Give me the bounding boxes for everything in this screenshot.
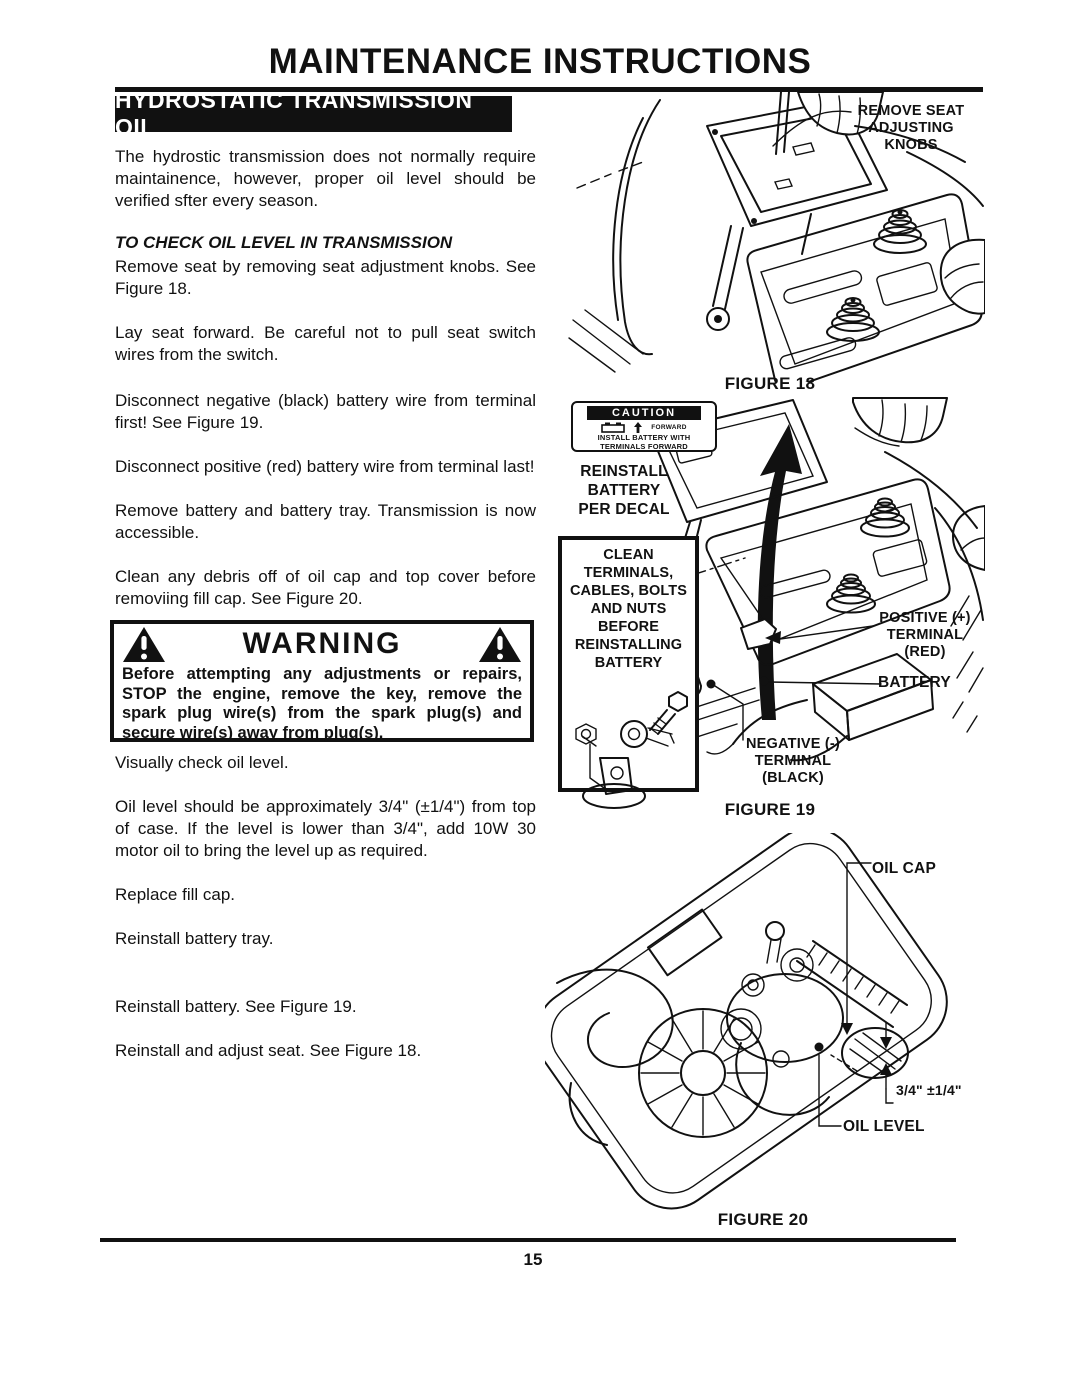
warning-triangle-icon	[122, 626, 166, 664]
reinstall-battery-note: REINSTALL BATTERY PER DECAL	[558, 462, 690, 519]
caution-decal-title: CAUTION	[587, 406, 701, 420]
fig19-caption: FIGURE 19	[690, 800, 850, 820]
oil-level-label: OIL LEVEL	[843, 1118, 935, 1135]
intro-paragraph: The hydrostic transmission does not norm…	[115, 146, 536, 212]
instruction-paragraph: Reinstall battery tray.	[115, 928, 536, 950]
warning-box: WARNING Before attempting any adjustment…	[110, 620, 534, 742]
battery-icon	[601, 422, 625, 433]
forward-arrow-icon	[633, 422, 643, 434]
negative-terminal-label: NEGATIVE (-) TERMINAL (BLACK)	[735, 736, 851, 787]
instruction-paragraph: Remove battery and battery tray. Transmi…	[115, 500, 536, 544]
fig20-caption: FIGURE 20	[683, 1210, 843, 1230]
figure-20-illustration	[545, 833, 980, 1238]
oil-cap-label: OIL CAP	[872, 860, 954, 877]
fig18-remove-seat-callout: REMOVE SEAT ADJUSTING KNOBS	[845, 103, 977, 154]
instruction-paragraph: Reinstall and adjust seat. See Figure 18…	[115, 1040, 536, 1062]
instruction-paragraph: Disconnect negative (black) battery wire…	[115, 390, 536, 434]
clean-terminals-inset: CLEAN TERMINALS, CABLES, BOLTS AND NUTS …	[558, 536, 699, 792]
battery-label: BATTERY	[878, 674, 968, 691]
warning-title: WARNING	[243, 626, 402, 662]
decal-forward-label: FORWARD	[651, 424, 687, 431]
section-heading: HYDROSTATIC TRANSMISSION OIL	[115, 96, 512, 132]
page-number: 15	[0, 1250, 1066, 1270]
oil-level-dimension-label: 3/4" ±1/4"	[896, 1082, 988, 1099]
warning-body: Before attempting any adjustments or rep…	[122, 665, 522, 743]
instruction-paragraph: Lay seat forward. Be careful not to pull…	[115, 322, 536, 366]
warning-triangle-icon	[478, 626, 522, 664]
caution-decal-line2: TERMINALS FORWARD	[577, 443, 711, 452]
instruction-paragraph: Clean any debris off of oil cap and top …	[115, 566, 536, 610]
instruction-paragraph: Reinstall battery. See Figure 19.	[115, 996, 536, 1018]
instruction-paragraph: Replace fill cap.	[115, 884, 536, 906]
clean-terminals-note: CLEAN TERMINALS, CABLES, BOLTS AND NUTS …	[562, 546, 695, 672]
sub-heading: TO CHECK OIL LEVEL IN TRANSMISSION	[115, 233, 536, 253]
instruction-paragraph: Remove seat by removing seat adjustment …	[115, 256, 536, 300]
page-title: MAINTENANCE INSTRUCTIONS	[0, 42, 1080, 82]
instruction-paragraph: Visually check oil level.	[115, 752, 536, 774]
instruction-paragraph: Disconnect positive (red) battery wire f…	[115, 456, 536, 478]
instruction-paragraph: Oil level should be approximately 3/4" (…	[115, 796, 536, 862]
positive-terminal-label: POSITIVE (+) TERMINAL (RED)	[872, 610, 978, 661]
footer-rule	[100, 1238, 956, 1242]
caution-decal: CAUTION FORWARD INSTALL BATTERY WITH TER…	[571, 401, 717, 452]
terminal-hardware-drawing	[562, 672, 696, 817]
manual-page: MAINTENANCE INSTRUCTIONS HYDROSTATIC TRA…	[0, 0, 1080, 1397]
